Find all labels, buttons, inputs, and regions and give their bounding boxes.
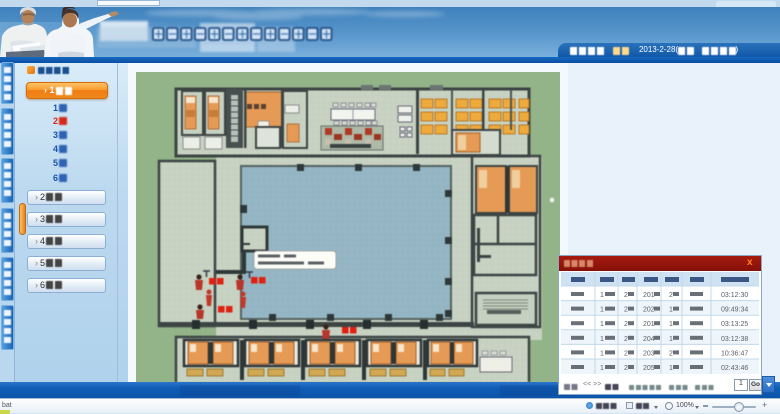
svg-text:1: 1 xyxy=(669,365,673,372)
svg-text:2: 2 xyxy=(669,350,673,357)
svg-text:1: 1 xyxy=(600,321,604,328)
svg-text:03:13:25: 03:13:25 xyxy=(721,321,748,328)
svg-text:10:36:47: 10:36:47 xyxy=(721,350,748,357)
svg-text:1: 1 xyxy=(669,336,673,343)
svg-text:201: 201 xyxy=(643,321,655,328)
svg-text:2: 2 xyxy=(624,350,628,357)
svg-text:205: 205 xyxy=(643,365,655,372)
svg-text:09:49:34: 09:49:34 xyxy=(721,307,748,314)
svg-text:1: 1 xyxy=(669,307,673,314)
svg-text:1: 1 xyxy=(600,350,604,357)
svg-text:2: 2 xyxy=(624,336,628,343)
svg-text:2: 2 xyxy=(624,365,628,372)
svg-text:1: 1 xyxy=(600,292,604,299)
svg-text:1: 1 xyxy=(669,321,673,328)
svg-text:2: 2 xyxy=(669,292,673,299)
svg-text:02:43:46: 02:43:46 xyxy=(721,365,748,372)
svg-text:203: 203 xyxy=(643,350,655,357)
svg-text:03:12:30: 03:12:30 xyxy=(721,292,748,299)
svg-text:1: 1 xyxy=(600,307,604,314)
svg-text:1: 1 xyxy=(600,336,604,343)
svg-text:201: 201 xyxy=(643,292,655,299)
svg-text:03:12:38: 03:12:38 xyxy=(721,336,748,343)
svg-text:2: 2 xyxy=(624,321,628,328)
svg-text:2: 2 xyxy=(624,307,628,314)
svg-text:2: 2 xyxy=(624,292,628,299)
svg-text:1: 1 xyxy=(600,365,604,372)
svg-text:204: 204 xyxy=(643,336,655,343)
svg-text:202: 202 xyxy=(643,307,655,314)
